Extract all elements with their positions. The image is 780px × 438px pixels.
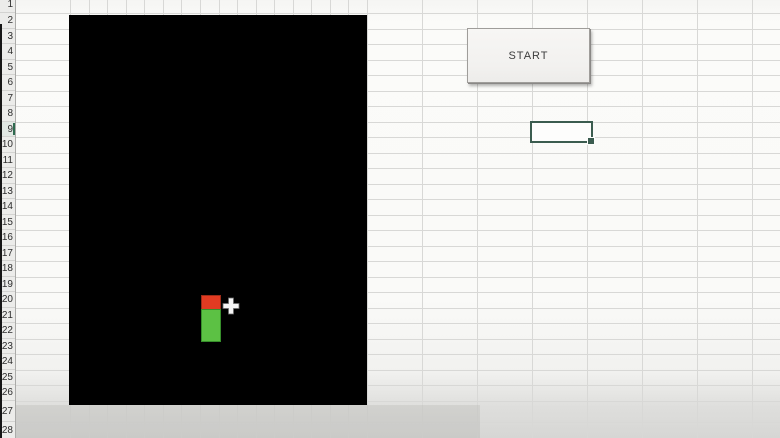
cell-cursor-plus-icon (222, 297, 240, 315)
row-header[interactable]: 4 (0, 44, 15, 60)
row-header[interactable]: 23 (0, 339, 15, 355)
row-header[interactable]: 17 (0, 246, 15, 262)
row-header[interactable]: 28 (0, 422, 15, 438)
grid-line-v (642, 0, 643, 438)
row-header[interactable]: 15 (0, 215, 15, 231)
row-header[interactable]: 18 (0, 261, 15, 277)
selected-cell[interactable] (530, 121, 593, 143)
start-button-label: START (508, 50, 548, 62)
row-header[interactable]: 19 (0, 277, 15, 293)
row-header[interactable]: 9 (0, 122, 15, 138)
snake-body-block (201, 309, 221, 342)
row-header[interactable]: 25 (0, 370, 15, 386)
screen-edge (0, 24, 2, 438)
row-header[interactable]: 27 (0, 401, 15, 422)
grid-line-h (15, 13, 780, 14)
row-header[interactable]: 5 (0, 60, 15, 76)
grid-line-v (367, 0, 368, 438)
row-header-column: 1234567891011121314151617181920212223242… (0, 0, 16, 438)
row-header[interactable]: 16 (0, 230, 15, 246)
row-header[interactable]: 26 (0, 385, 15, 401)
grid-line-v (422, 0, 423, 438)
grid-line-v (752, 0, 753, 438)
bottom-shading (2, 405, 480, 438)
row-header[interactable]: 2 (0, 13, 15, 29)
game-board (69, 15, 367, 405)
fill-handle[interactable] (587, 137, 595, 145)
snake-head-block (201, 295, 221, 310)
row-header[interactable]: 12 (0, 168, 15, 184)
grid-line-v (697, 0, 698, 438)
row-header[interactable]: 13 (0, 184, 15, 200)
row-header[interactable]: 22 (0, 323, 15, 339)
row-header[interactable]: 8 (0, 106, 15, 122)
row-header[interactable]: 11 (0, 153, 15, 169)
excel-window: 1234567891011121314151617181920212223242… (0, 0, 780, 438)
row-header[interactable]: 1 (0, 0, 15, 13)
row-header[interactable]: 3 (0, 29, 15, 45)
row-header[interactable]: 20 (0, 292, 15, 308)
row-header[interactable]: 24 (0, 354, 15, 370)
row-header[interactable]: 6 (0, 75, 15, 91)
row-header[interactable]: 10 (0, 137, 15, 153)
row-header[interactable]: 14 (0, 199, 15, 215)
start-button[interactable]: START (467, 28, 590, 83)
row-header[interactable]: 7 (0, 91, 15, 107)
row-header[interactable]: 21 (0, 308, 15, 324)
